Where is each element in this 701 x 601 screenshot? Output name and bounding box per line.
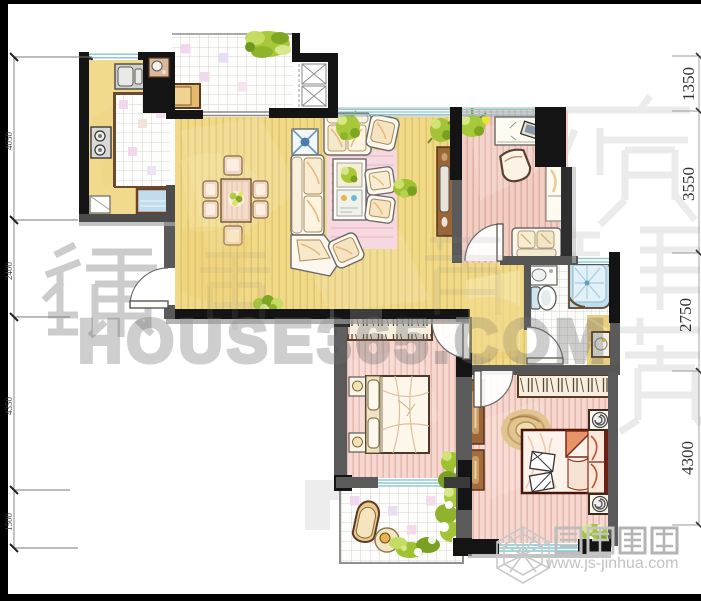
svg-text:4350: 4350 (4, 397, 14, 416)
svg-text:2400: 2400 (4, 262, 14, 281)
svg-text:www.js-jinhua.com: www.js-jinhua.com (545, 555, 678, 572)
svg-text:3550: 3550 (679, 167, 698, 201)
svg-text:1350: 1350 (679, 67, 698, 101)
svg-text:HOUSE365.COM: HOUSE365.COM (78, 307, 610, 375)
svg-text:4050: 4050 (4, 132, 14, 151)
svg-text:2750: 2750 (676, 298, 695, 332)
svg-text:4300: 4300 (678, 441, 697, 475)
svg-text:1500: 1500 (4, 513, 14, 532)
